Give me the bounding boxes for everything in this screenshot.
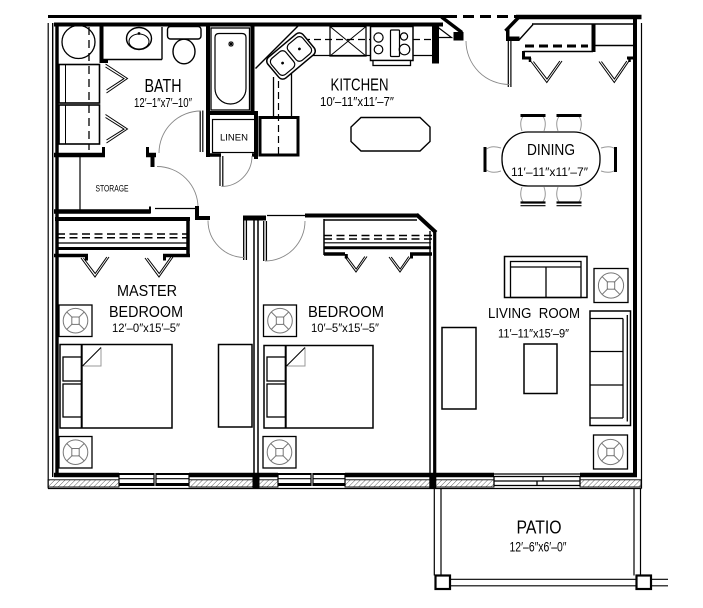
svg-text:11′–11″x15′–9″: 11′–11″x15′–9″ xyxy=(498,327,570,341)
svg-text:DINING: DINING xyxy=(527,142,575,159)
svg-text:BATH: BATH xyxy=(145,76,182,96)
svg-text:BEDROOM: BEDROOM xyxy=(308,304,384,321)
svg-text:BEDROOM: BEDROOM xyxy=(109,304,183,321)
svg-text:12′–1″x7′–10″: 12′–1″x7′–10″ xyxy=(134,96,192,110)
svg-text:12′–6″x6′–0″: 12′–6″x6′–0″ xyxy=(510,540,567,555)
svg-text:KITCHEN: KITCHEN xyxy=(331,75,389,95)
svg-text:LIVING ROOM: LIVING ROOM xyxy=(488,305,580,322)
svg-text:LINEN: LINEN xyxy=(220,133,248,143)
svg-text:11′–11″x11′–7″: 11′–11″x11′–7″ xyxy=(511,165,589,179)
svg-text:10′–5″x15′–5″: 10′–5″x15′–5″ xyxy=(311,321,380,335)
svg-text:12′–0″x15′–5″: 12′–0″x15′–5″ xyxy=(112,321,181,335)
svg-text:10′–11″x11′–7″: 10′–11″x11′–7″ xyxy=(320,95,395,109)
svg-text:MASTER: MASTER xyxy=(117,283,177,300)
svg-text:PATIO: PATIO xyxy=(517,518,562,538)
svg-text:STORAGE: STORAGE xyxy=(96,184,129,194)
